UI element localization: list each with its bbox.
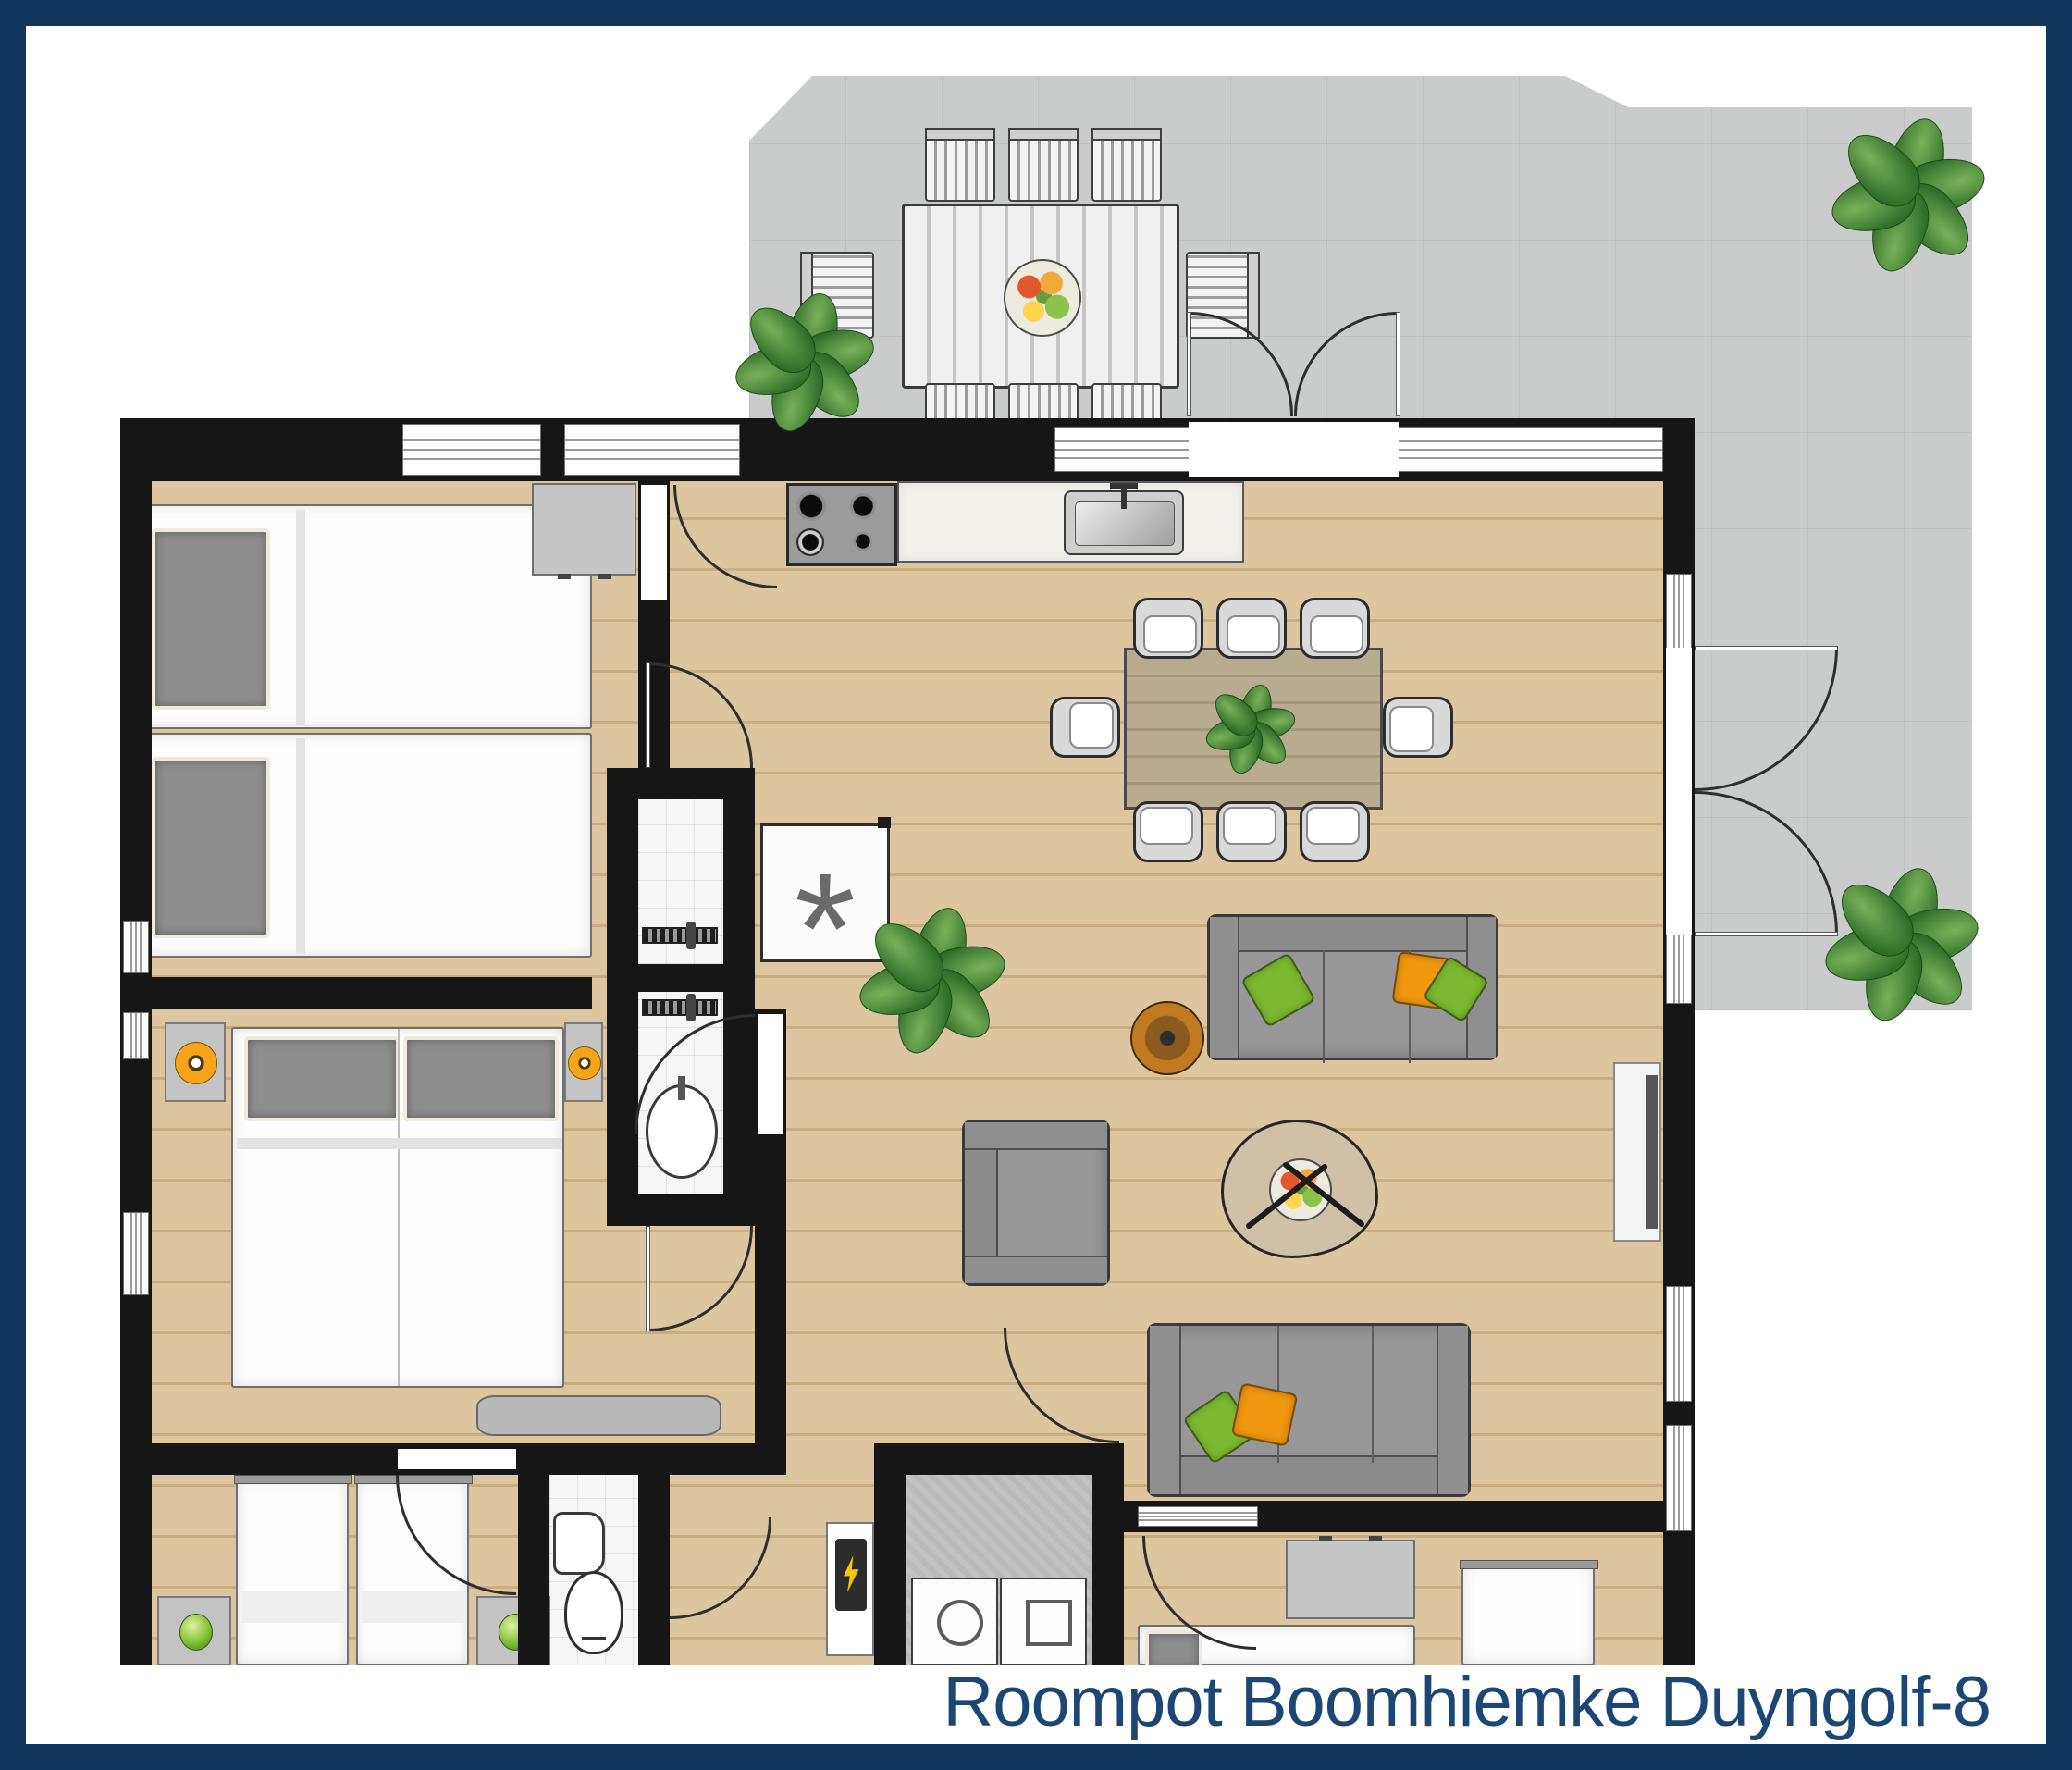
- utility-wall: [1092, 1443, 1124, 1665]
- dining-chair: [1133, 598, 1203, 659]
- interior-wall: [120, 977, 592, 1009]
- utility-wall: [874, 1443, 1124, 1475]
- frame-border-right: [2046, 0, 2072, 1770]
- duvet-fold: [241, 1591, 347, 1623]
- dining-chair: [1300, 801, 1370, 862]
- terrace-plant: [1852, 137, 1965, 250]
- armchair-arm: [965, 1122, 1107, 1150]
- cabinet-handle: [558, 574, 571, 579]
- dining-chair: [1133, 801, 1203, 862]
- shower-divider-wall: [607, 964, 755, 992]
- chair-seat: [1223, 807, 1276, 845]
- sofa-arm: [1437, 1326, 1468, 1494]
- washer-door: [937, 1600, 983, 1646]
- frame-border-bottom: [0, 1744, 2072, 1770]
- chair-backrest: [925, 128, 995, 141]
- freezer: *: [760, 823, 890, 962]
- tv-screen: [1646, 1075, 1658, 1229]
- shower-wall: [607, 1194, 755, 1226]
- duvet-fold: [362, 1591, 467, 1623]
- outdoor-chair: [1008, 137, 1079, 202]
- sink-faucet-handle: [1110, 483, 1138, 489]
- window: [1666, 1425, 1692, 1531]
- frame-border-left: [0, 0, 26, 1770]
- door-leaf: [1695, 932, 1838, 936]
- chair-seat: [1143, 615, 1196, 653]
- dryer: [1000, 1578, 1087, 1665]
- dresser-handle: [1369, 1536, 1382, 1541]
- chair-seat: [1306, 807, 1359, 845]
- toilet-seat-line: [582, 1637, 606, 1640]
- shower-wall: [723, 768, 755, 1226]
- indoor-plant: [879, 925, 986, 1033]
- duvet-fold: [237, 1138, 562, 1149]
- dining-chair: [1216, 801, 1287, 862]
- toilet-wall: [518, 1475, 549, 1665]
- armchair: [962, 1120, 1110, 1286]
- duvet-fold: [296, 510, 305, 725]
- electrical-panel: [826, 1522, 874, 1656]
- shower-rail: [642, 999, 718, 1016]
- french-door-opening: [1189, 422, 1399, 477]
- chair-backrest: [1091, 128, 1162, 141]
- chair-seat: [1140, 807, 1192, 845]
- bed-pillow: [403, 1036, 559, 1121]
- dining-chair: [1216, 598, 1287, 659]
- duvet-fold: [296, 738, 305, 954]
- shower-wall: [607, 768, 638, 1226]
- french-door-opening: [1666, 648, 1692, 935]
- shower-faucet: [686, 922, 696, 949]
- dining-table-plant: [1218, 696, 1283, 761]
- burner: [850, 493, 876, 519]
- single-bed: [1461, 1564, 1595, 1665]
- chair-seat: [1310, 615, 1363, 653]
- green-lamp: [179, 1614, 213, 1651]
- burner: [796, 491, 826, 521]
- cabinet-handle: [598, 574, 611, 579]
- dresser-handle: [1319, 1536, 1332, 1541]
- window: [564, 424, 740, 476]
- round-side-table: [1130, 1001, 1204, 1075]
- floorplan-page: *: [0, 0, 2072, 1770]
- bed-pillow: [152, 757, 270, 938]
- cushion-orange: [1231, 1382, 1299, 1447]
- shower-rail: [642, 927, 718, 944]
- tv-panel: [1613, 1062, 1661, 1242]
- wall-shelf: [476, 1395, 721, 1436]
- single-bed: [236, 1479, 349, 1665]
- dining-chair: [1383, 697, 1453, 758]
- terrace-plant: [754, 310, 856, 412]
- freezer-hinge: [878, 817, 891, 828]
- door-leaf: [1695, 646, 1838, 650]
- door-leaf: [1187, 312, 1191, 416]
- dining-chair: [1300, 598, 1370, 659]
- shower-faucet: [686, 994, 696, 1021]
- single-bed: [137, 733, 592, 958]
- sofa-arm: [1210, 917, 1239, 1058]
- door-opening: [758, 1014, 783, 1134]
- door-leaf: [646, 1226, 650, 1331]
- window: [402, 424, 541, 476]
- fruit-plate: [1004, 259, 1081, 337]
- door-opening: [398, 1449, 516, 1469]
- kitchen-cabinet: [532, 483, 636, 576]
- window: [123, 1212, 149, 1295]
- gas-hob: [786, 483, 897, 566]
- door-leaf: [646, 662, 650, 768]
- chair-seat: [1069, 702, 1113, 749]
- glazed-door: [1138, 1506, 1258, 1527]
- terrace-plant: [1845, 886, 1958, 999]
- single-bed: [137, 504, 592, 729]
- orange-lamp: [175, 1042, 217, 1084]
- bed-pillow: [244, 1036, 400, 1121]
- window: [1666, 1286, 1692, 1402]
- window: [123, 921, 149, 973]
- burner: [854, 532, 872, 551]
- outdoor-chair: [925, 137, 995, 202]
- dresser: [1286, 1540, 1415, 1619]
- chair-backrest: [1247, 252, 1260, 339]
- bed-pillow: [152, 528, 270, 710]
- sofa-backrest: [1150, 1455, 1468, 1494]
- single-bed: [1138, 1625, 1415, 1665]
- toilet: [564, 1571, 623, 1654]
- washing-machine: [911, 1578, 998, 1665]
- bed-headboard: [1460, 1560, 1598, 1569]
- kitchen-sink: [1064, 490, 1184, 555]
- chair-backrest: [1008, 128, 1079, 141]
- armchair-arm: [965, 1256, 1107, 1283]
- utility-wall: [874, 1443, 906, 1665]
- dryer-door: [1026, 1600, 1072, 1646]
- window: [123, 1012, 149, 1059]
- sofa-arm: [1150, 1326, 1181, 1494]
- chair-seat: [1389, 706, 1433, 752]
- door-leaf: [1396, 312, 1400, 416]
- toilet-washbasin: [553, 1512, 605, 1575]
- toilet-wall: [638, 1475, 670, 1665]
- dining-chair: [1050, 697, 1120, 758]
- burner: [796, 528, 824, 556]
- sofa-cushion-split: [1323, 950, 1325, 1063]
- chair-seat: [1227, 615, 1279, 653]
- page-title: Roompot Boomhiemke Duyngolf-8: [943, 1664, 1991, 1741]
- double-bed: [231, 1027, 564, 1388]
- bed-split: [398, 1029, 400, 1386]
- orange-lamp: [568, 1046, 601, 1080]
- bed-footboard: [234, 1475, 352, 1484]
- frame-border-top: [0, 0, 2072, 26]
- sofa-cushion-split: [1372, 1326, 1374, 1463]
- outdoor-chair: [1091, 137, 1162, 202]
- sofa-backrest: [1210, 917, 1496, 952]
- door-opening: [641, 485, 667, 600]
